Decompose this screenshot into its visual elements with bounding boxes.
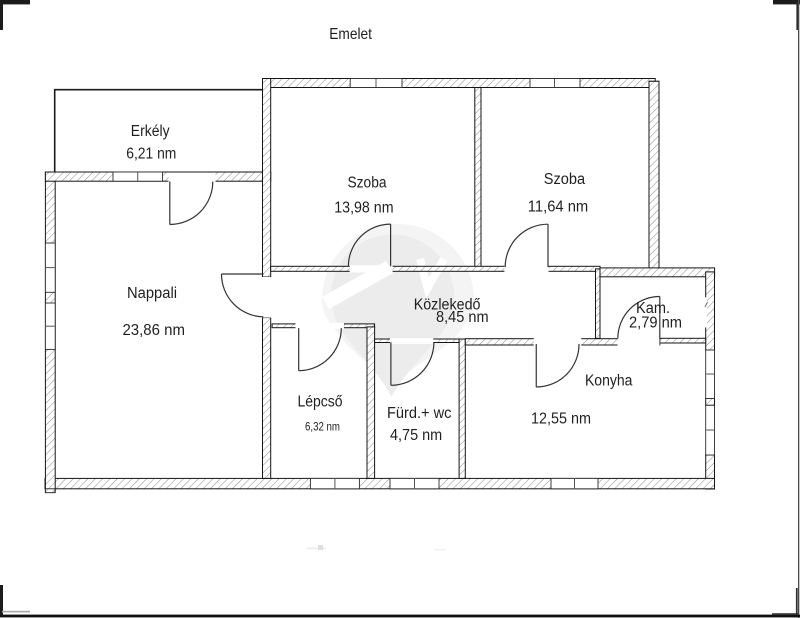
svg-text:6,32 nm: 6,32 nm [305, 422, 340, 434]
svg-text:8,45 nm: 8,45 nm [436, 309, 489, 326]
svg-text:Szoba: Szoba [348, 175, 387, 192]
svg-text:2,79 nm: 2,79 nm [629, 315, 682, 332]
svg-text:Lépcső: Lépcső [298, 394, 343, 411]
svg-text:Erkély: Erkély [131, 123, 170, 140]
svg-text:11,64 nm: 11,64 nm [528, 198, 589, 215]
svg-text:Konyha: Konyha [585, 373, 633, 390]
svg-text:Nappali: Nappali [127, 285, 177, 302]
svg-text:4,75 nm: 4,75 nm [390, 427, 442, 444]
svg-text:12,55 nm: 12,55 nm [531, 411, 591, 428]
svg-text:23,86 nm: 23,86 nm [122, 322, 185, 339]
svg-text:Szoba: Szoba [544, 171, 586, 188]
svg-text:Fürd.+ wc: Fürd.+ wc [387, 405, 452, 422]
svg-text:6,21 nm: 6,21 nm [126, 145, 176, 162]
svg-text:13,98 nm: 13,98 nm [334, 199, 393, 216]
svg-text:Emelet: Emelet [329, 26, 372, 43]
